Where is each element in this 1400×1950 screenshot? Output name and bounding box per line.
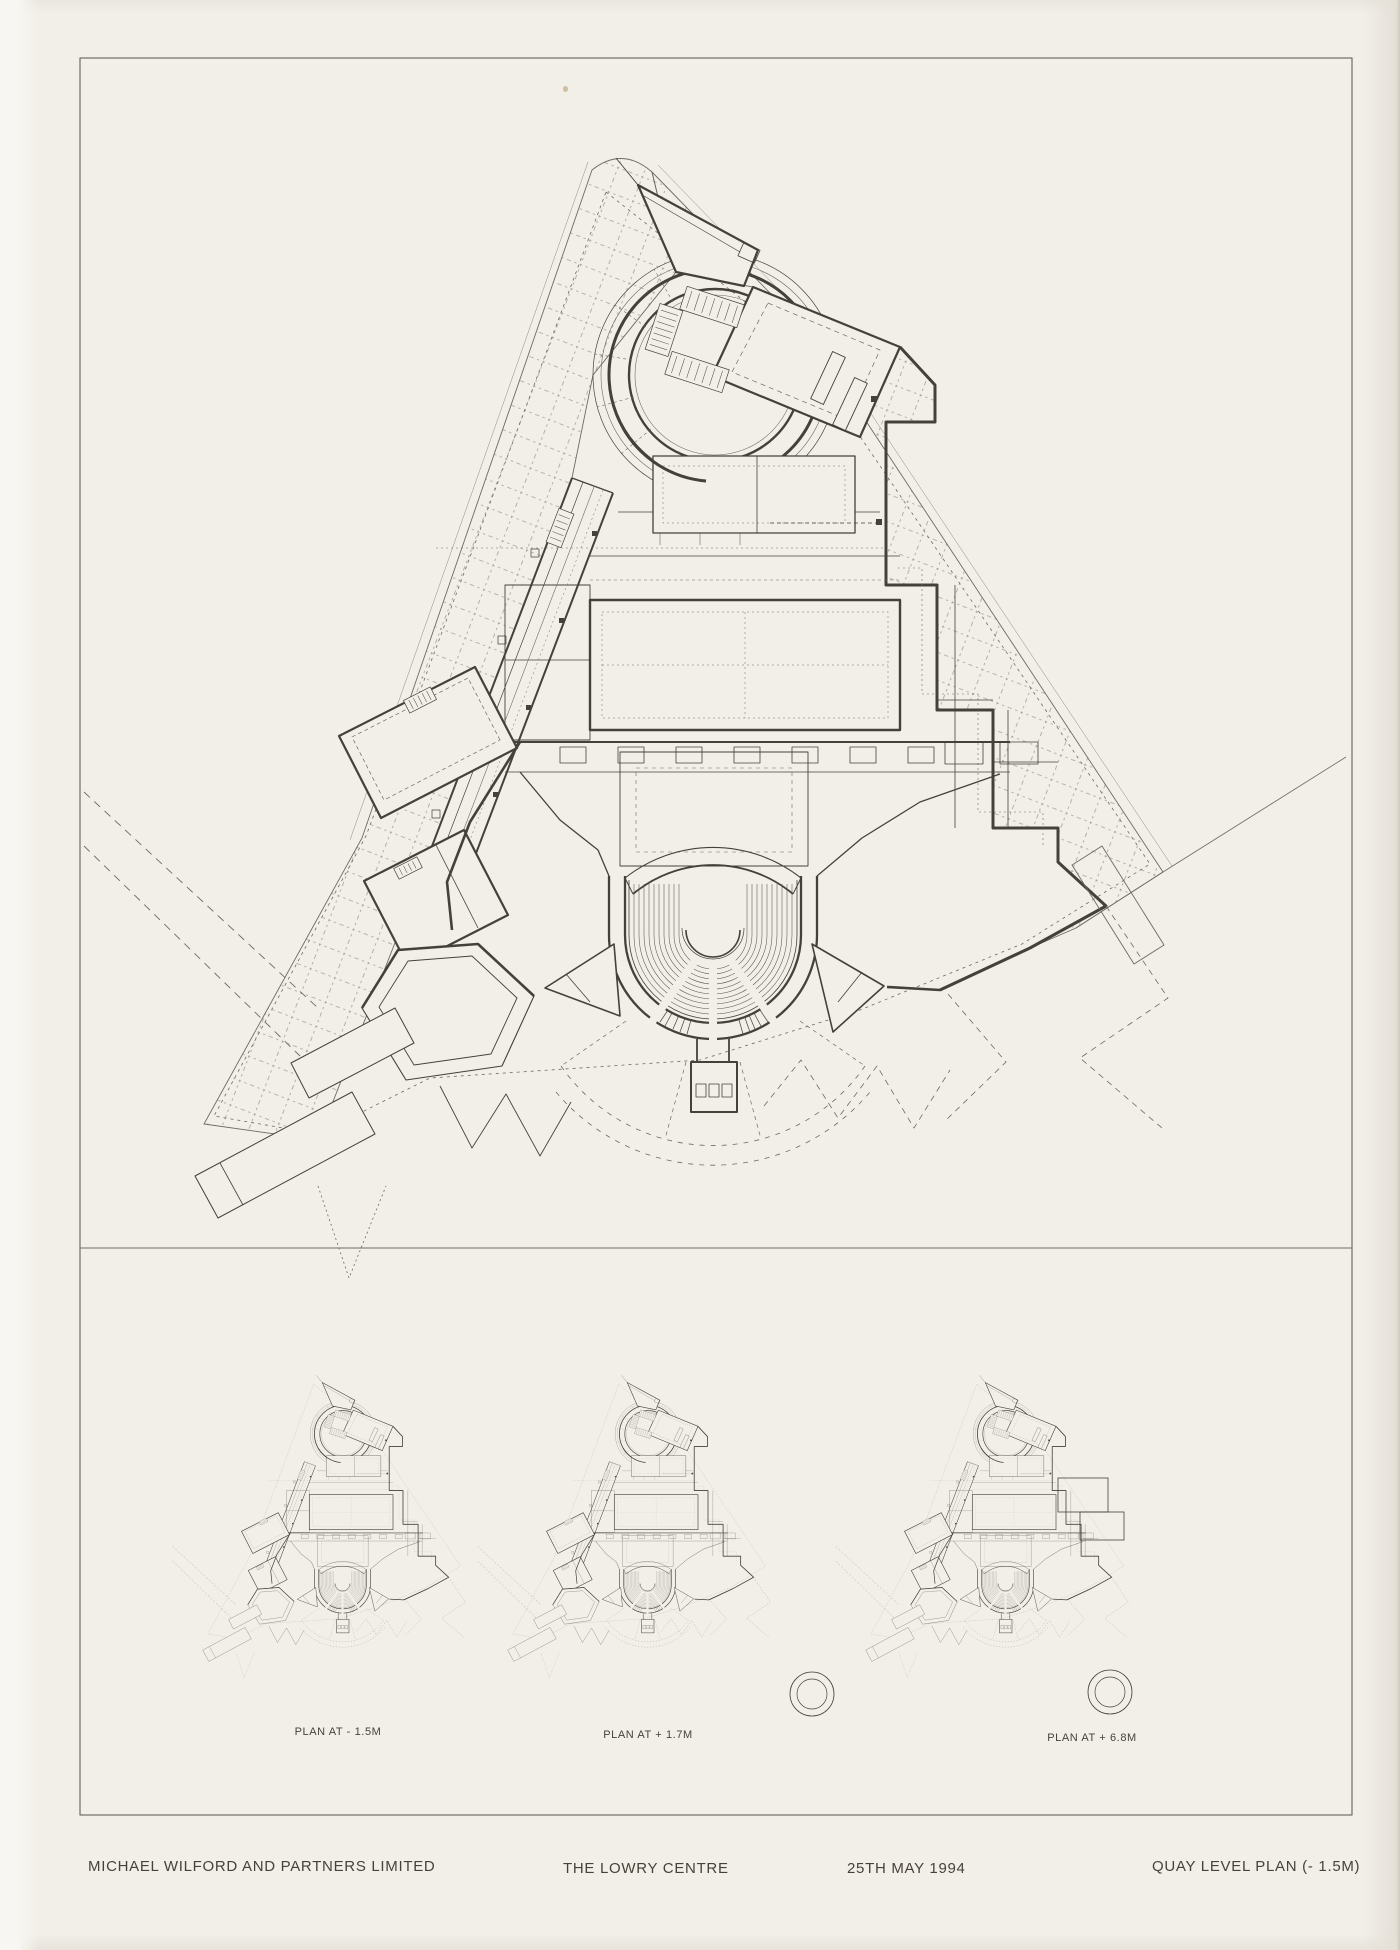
mini-plan-2 <box>478 1375 834 1716</box>
caption-plan3: PLAN AT + 6.8M <box>1047 1732 1137 1744</box>
title-architect: MICHAEL WILFORD AND PARTNERS LIMITED <box>88 1858 435 1875</box>
caption-plan2: PLAN AT + 1.7M <box>603 1729 693 1741</box>
caption-plan1: PLAN AT - 1.5M <box>295 1726 382 1738</box>
title-date: 25TH MAY 1994 <box>847 1860 966 1877</box>
main-plan <box>84 158 1346 1278</box>
drawing-sheet: PLAN AT - 1.5M PLAN AT + 1.7M PLAN AT + … <box>0 0 1400 1950</box>
mini-plan-1 <box>173 1375 466 1677</box>
mini3-rotunda <box>1088 1670 1132 1714</box>
mini3-extra-rooms <box>1058 1478 1124 1540</box>
title-project: THE LOWRY CENTRE <box>563 1860 729 1877</box>
mini-plan-3 <box>836 1375 1132 1714</box>
title-sheet: QUAY LEVEL PLAN (- 1.5M) <box>1152 1858 1360 1875</box>
mini2-rotunda <box>790 1672 834 1716</box>
plan-drawing <box>0 0 1400 1950</box>
